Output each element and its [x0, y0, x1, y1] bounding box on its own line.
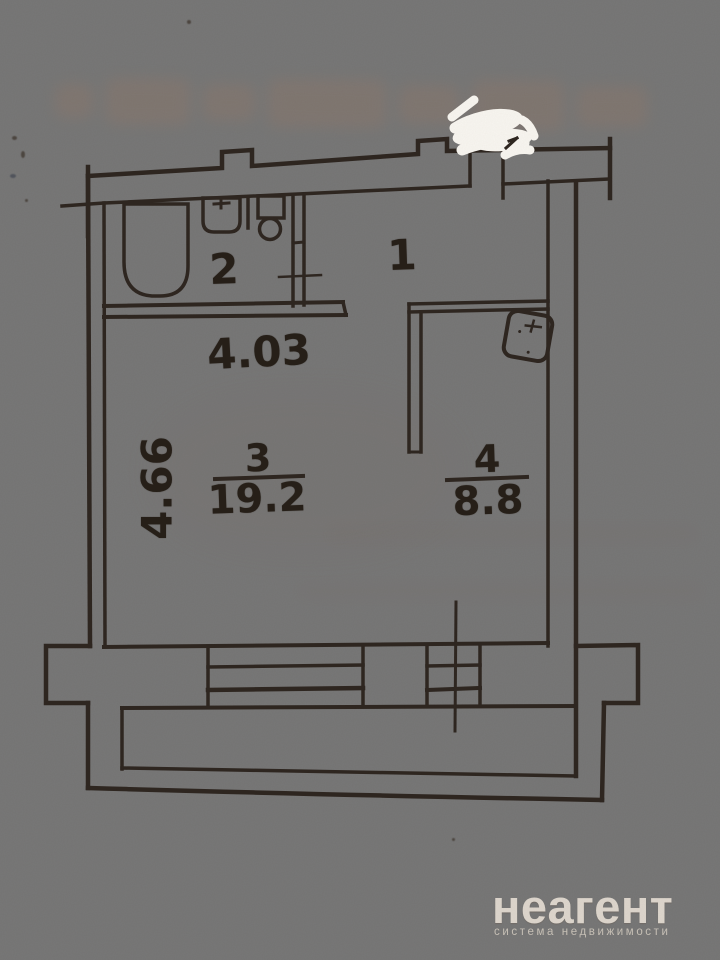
room-area-3: 19.2 [207, 474, 307, 523]
dimension-height: 4.66 [133, 436, 182, 540]
bathroom-fixtures [124, 196, 284, 296]
room-label-2: 2 [209, 244, 240, 294]
room-area-4: 8.8 [452, 477, 524, 525]
room-label-1: 1 [387, 230, 418, 280]
toilet-icon [258, 196, 284, 240]
bathtub-icon [124, 204, 188, 296]
stove-icon [502, 310, 553, 363]
section-line [455, 602, 456, 731]
interior-walls [104, 194, 548, 452]
watermark-tagline: система недвижимости [494, 926, 671, 938]
floor-plan-photo: 1 2 4.03 4.66 3 19.2 4 8.8 неагент систе… [0, 0, 720, 960]
room-label-4: 4 [473, 437, 501, 482]
whiteout-scribble [450, 100, 534, 155]
apartment-floorplan-drawing [0, 0, 720, 960]
windows-and-balcony [88, 646, 604, 800]
dimension-width: 4.03 [206, 325, 312, 379]
room-label-3: 3 [244, 436, 272, 481]
